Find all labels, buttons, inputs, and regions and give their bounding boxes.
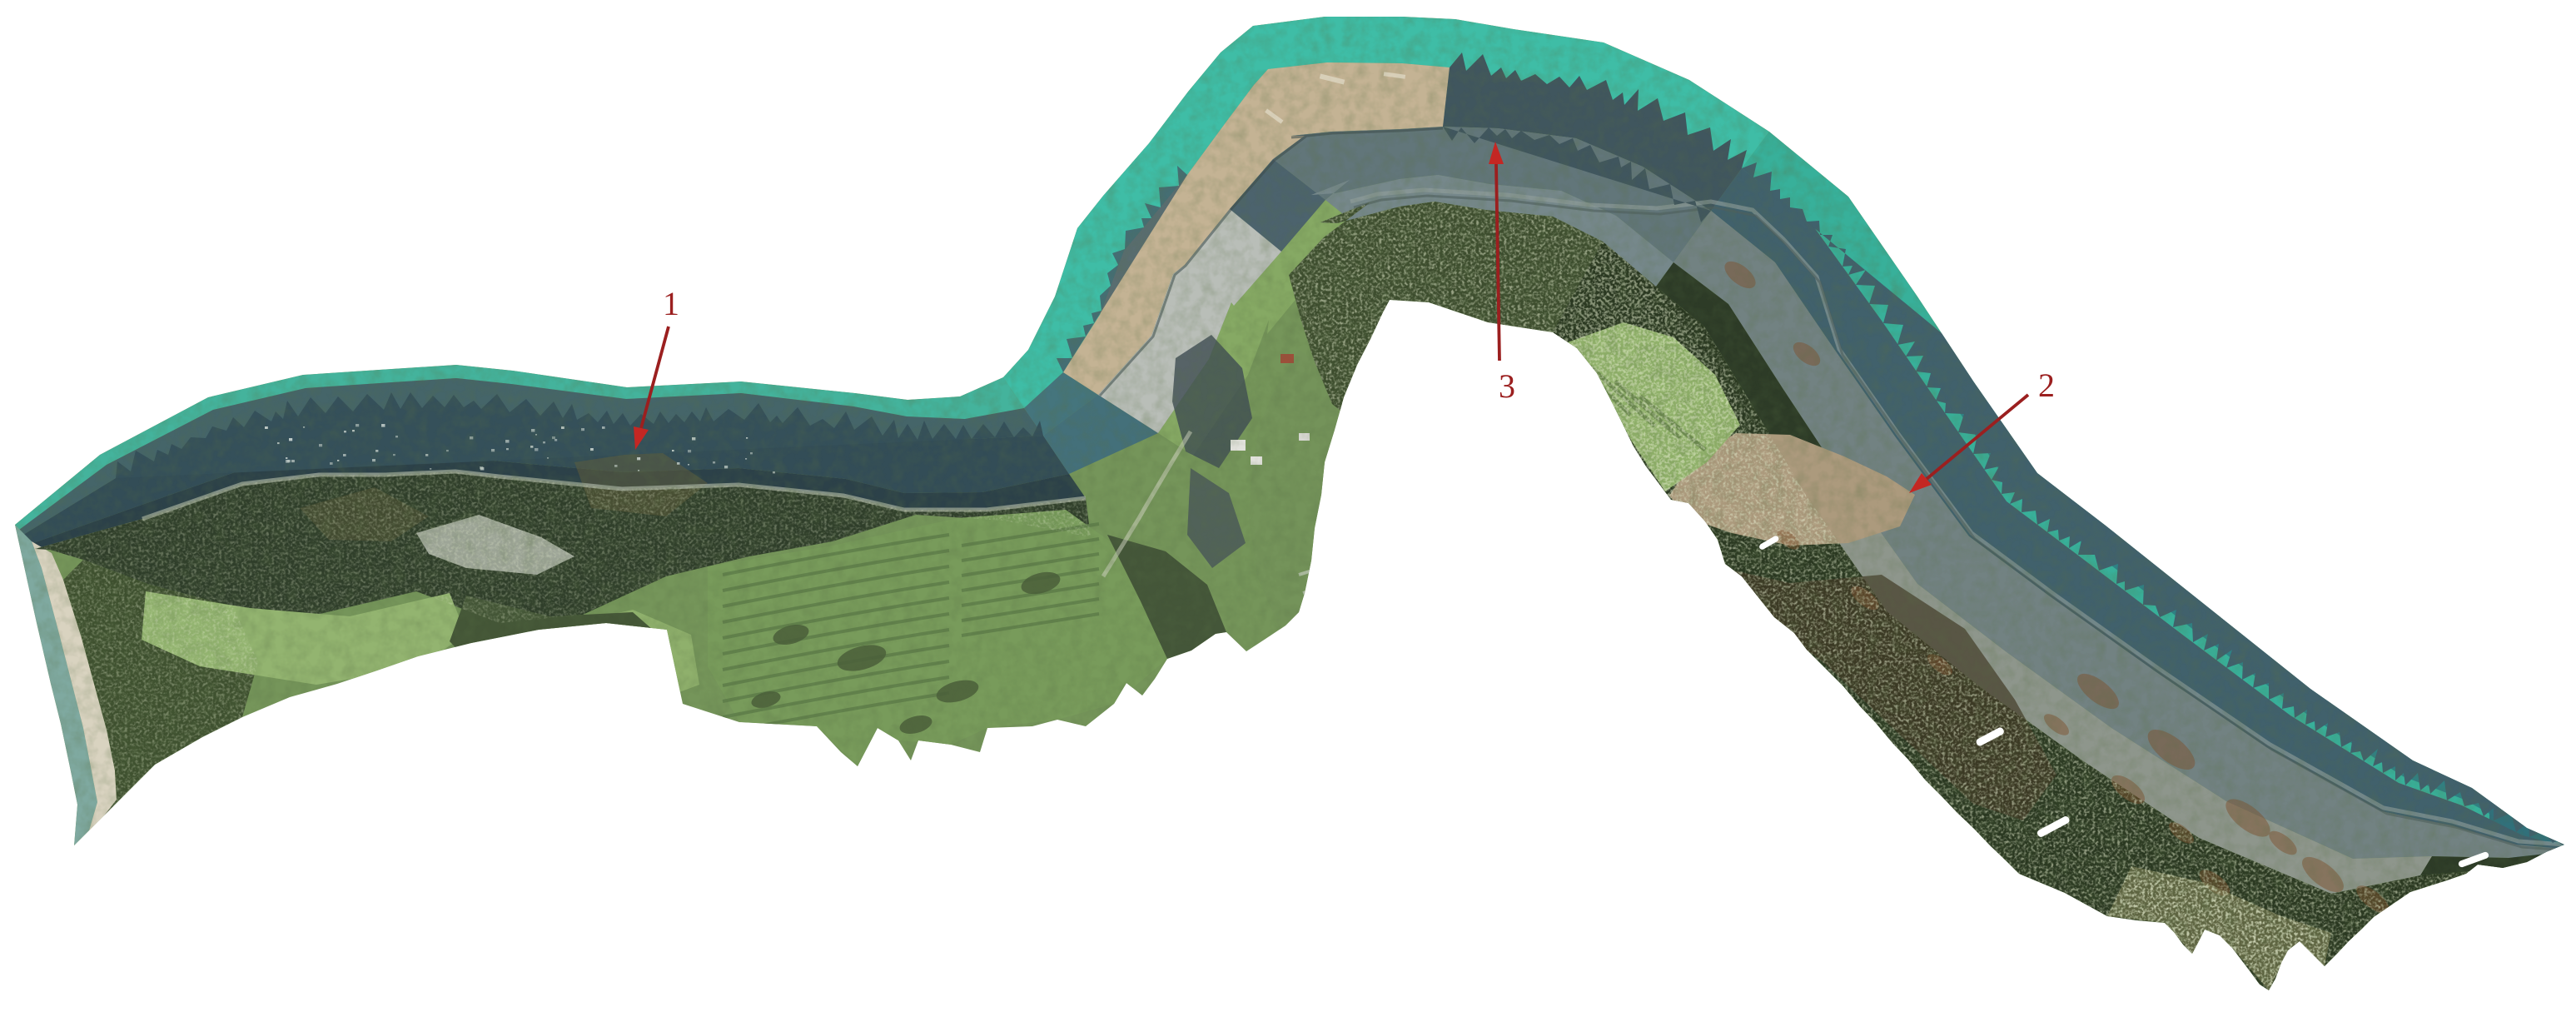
svg-text:3: 3 (1499, 367, 1515, 405)
svg-text:2: 2 (2038, 366, 2055, 404)
svg-text:1: 1 (663, 285, 679, 322)
